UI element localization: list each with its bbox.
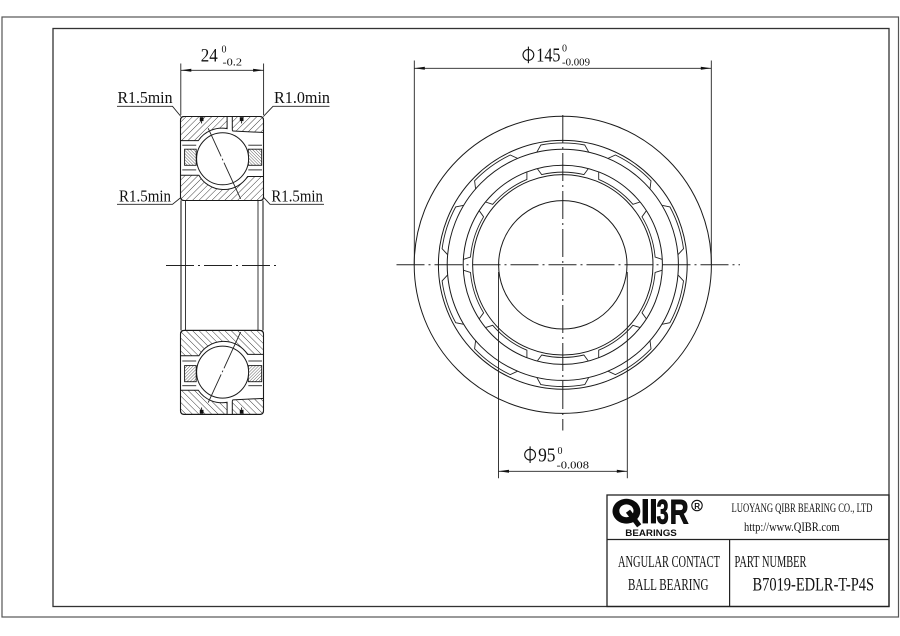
svg-text:-0.008: -0.008 bbox=[557, 460, 590, 471]
svg-text:R: R bbox=[670, 493, 689, 531]
svg-text:R1.5min: R1.5min bbox=[119, 186, 171, 205]
svg-text:0: 0 bbox=[562, 43, 567, 54]
svg-text:http://www.QIBR.com: http://www.QIBR.com bbox=[744, 520, 840, 534]
svg-text:BALL BEARING: BALL BEARING bbox=[628, 575, 709, 594]
svg-text:LUOYANG QIBR BEARING CO., LTD: LUOYANG QIBR BEARING CO., LTD bbox=[732, 501, 873, 515]
svg-text:R1.5min: R1.5min bbox=[271, 186, 323, 205]
svg-text:24: 24 bbox=[201, 46, 218, 67]
svg-text:-0.2: -0.2 bbox=[223, 58, 243, 69]
svg-text:R1.5min: R1.5min bbox=[118, 88, 173, 107]
svg-text:R1.0min: R1.0min bbox=[274, 88, 330, 107]
svg-text:95: 95 bbox=[538, 444, 555, 466]
svg-text:B7019-EDLR-T-P4S: B7019-EDLR-T-P4S bbox=[753, 575, 875, 595]
svg-text:0: 0 bbox=[222, 45, 227, 56]
svg-text:3: 3 bbox=[657, 493, 669, 531]
svg-text:BEARINGS: BEARINGS bbox=[625, 528, 677, 538]
svg-text:0: 0 bbox=[558, 446, 563, 457]
svg-text:-0.009: -0.009 bbox=[562, 58, 590, 69]
svg-text:PART NUMBER: PART NUMBER bbox=[735, 552, 807, 571]
svg-text:ANGULAR CONTACT: ANGULAR CONTACT bbox=[618, 552, 720, 571]
svg-text:145: 145 bbox=[536, 45, 560, 67]
svg-text:R: R bbox=[694, 502, 700, 511]
